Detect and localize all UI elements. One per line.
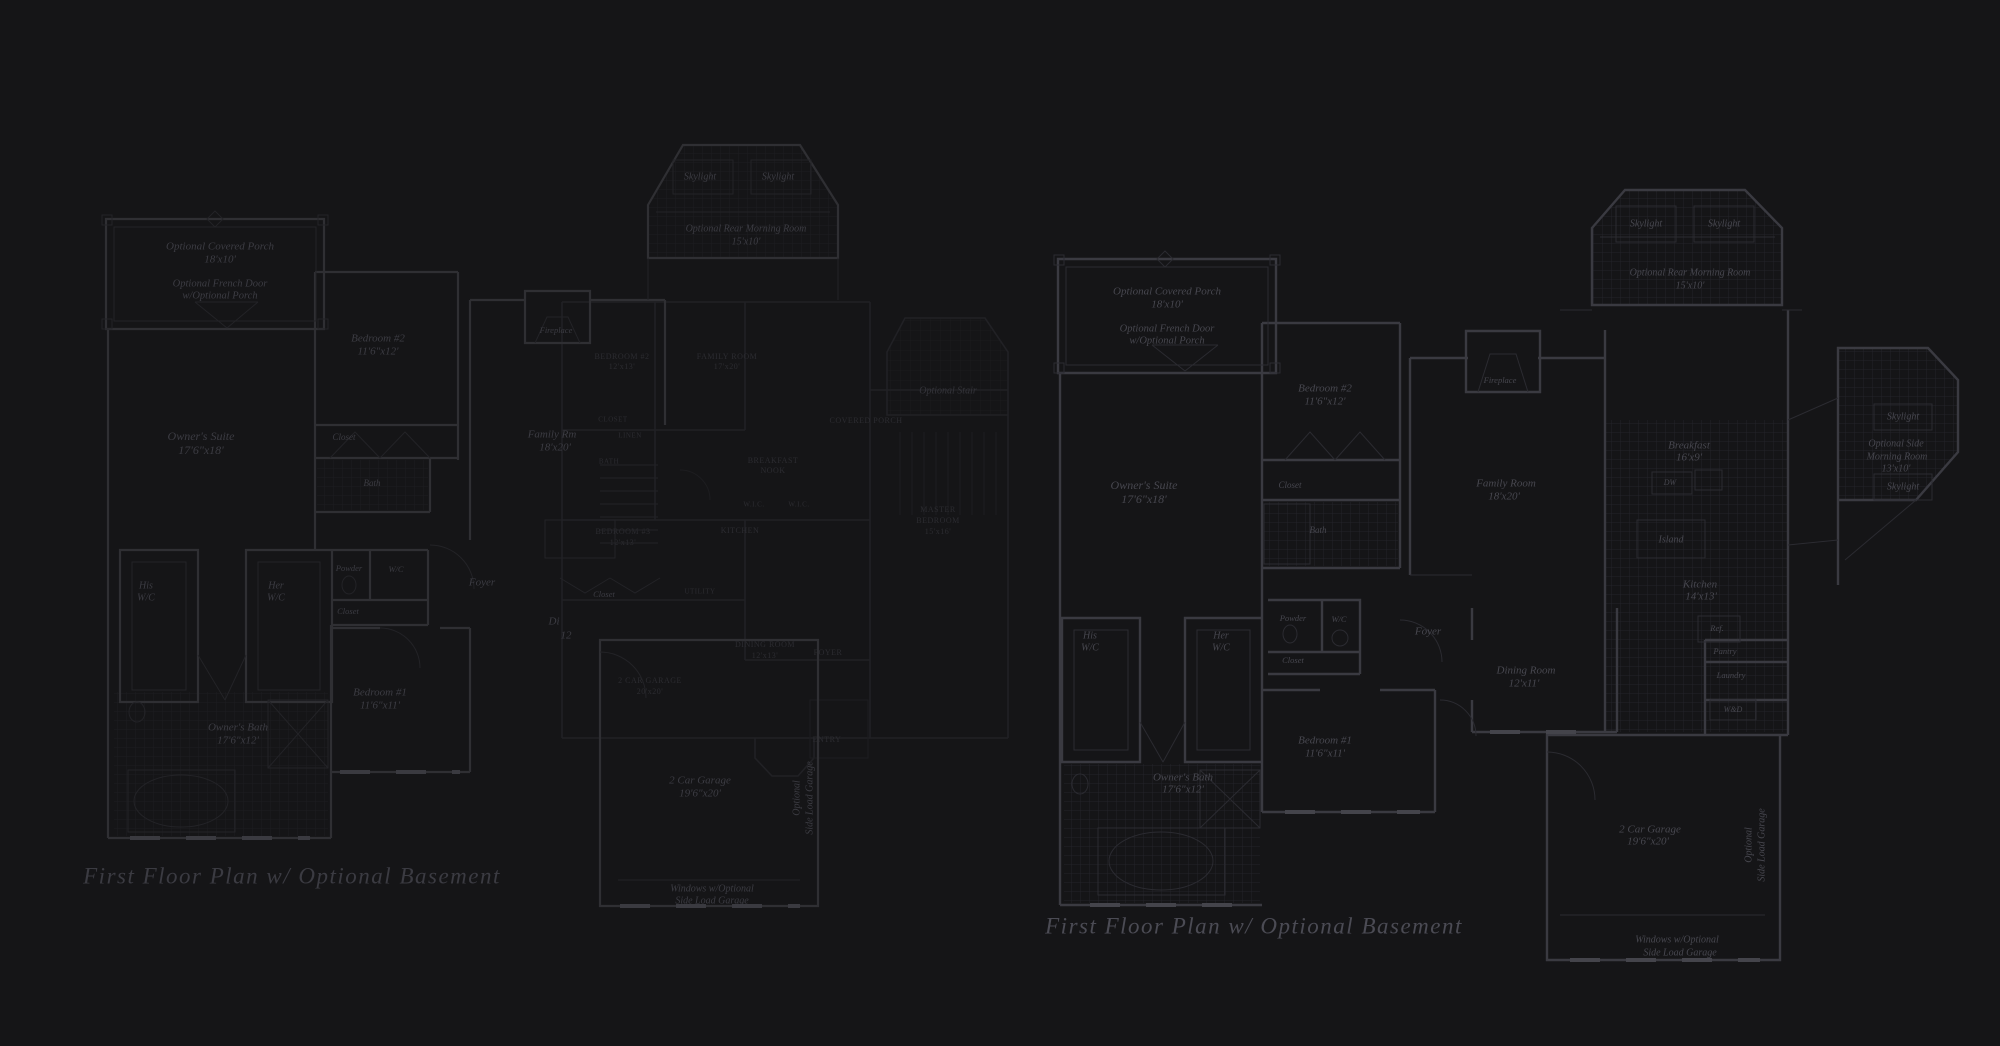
label-bedroom-2: Bedroom #2 [351,333,405,345]
label-morning-room-dims: 15'x10' [732,236,762,247]
label-foyer: Foyer [468,577,496,589]
label-bedroom-2: BEDROOM #2 [594,352,649,361]
label-pantry: Pantry [1712,646,1736,656]
label-dining-room-dims: 12'x13' [752,651,778,660]
label-covered-porch: Optional Covered Porch [166,241,274,253]
label-covered-porch: COVERED PORCH [830,416,903,425]
label-wic: W.I.C. [743,501,764,509]
label-her-wic: W/C [1212,642,1230,653]
label-closet: Closet [1282,655,1304,665]
label-skylight: Skylight [1708,218,1740,229]
label-garage-windows: Windows w/Optional [1635,934,1719,945]
label-linen: LINEN [618,432,642,440]
label-owners-bath-dims: 17'6"x12' [217,735,259,747]
label-master-bedroom: MASTER [920,505,956,514]
label-morning-room: Optional Rear Morning Room [686,223,807,234]
right-floor-plan: SkylightSkylightOptional Rear Morning Ro… [1044,190,1958,960]
label-side-morning-room-dims: 13'x10' [1882,463,1912,474]
label-garage: 2 Car Garage [669,775,731,787]
label-closet: Closet [337,606,359,616]
label-bedroom-1: Bedroom #1 [353,687,407,699]
label-bedroom-1: Bedroom #1 [1298,735,1352,747]
label-garage-windows: Windows w/Optional [670,883,754,894]
label-master-bedroom-dims: 15'x16' [925,527,951,536]
label-morning-room: Optional Rear Morning Room [1630,267,1751,278]
label-bedroom-1-dims: 11'6"x11' [1305,748,1346,760]
label-closet: Closet [1278,480,1302,490]
label-skylight: Skylight [762,171,794,182]
label-garage-dims: 19'6"x20' [1627,836,1669,848]
label-owners-bath: Owner's Bath [208,722,269,734]
label-side-load-garage-vertical: Side Load Garage [1756,808,1767,882]
label-owners-suite: Owner's Suite [1111,478,1179,492]
label-garage: 2 CAR GARAGE [618,676,682,685]
middle-plan-details [680,432,996,758]
label-garage-windows: Side Load Garage [675,895,749,906]
label-family-room: Family Rm [527,429,577,441]
middle-floor-plan: BEDROOM #212'x13'FAMILY ROOM17'x20'CLOSE… [562,302,1008,776]
label-breakfast-dims: 16'x9' [1676,452,1703,464]
label-closet: Closet [332,432,356,442]
label-side-load-garage-vertical: Optional [791,780,802,816]
label-garage: 2 Car Garage [1619,824,1681,836]
label-skylight: Skylight [684,171,716,182]
label-dining-room-dims: 12'x11' [1509,678,1540,690]
label-washer-dryer: W&D [1724,705,1743,714]
blueprint-canvas: BEDROOM #212'x13'FAMILY ROOM17'x20'CLOSE… [0,0,2000,1046]
label-covered-porch-dims: 18'x10' [1151,299,1183,311]
label-powder: Powder [1279,613,1307,623]
label-bedroom-3: BEDROOM #3 [595,527,650,536]
label-bedroom-2-dims: 12'x13' [609,362,635,371]
label-optional-stair: Optional Stair [919,385,977,396]
label-master-bedroom: BEDROOM [916,516,960,525]
floor-plans-drawing: BEDROOM #212'x13'FAMILY ROOM17'x20'CLOSE… [0,0,2000,1046]
right-powder-toilet [1283,625,1297,643]
label-her-wic: W/C [267,592,285,603]
label-morning-room-dims: 15'x10' [1676,280,1706,291]
right-powder-sink [1332,630,1348,646]
label-refrigerator: Ref. [1709,623,1723,633]
label-family-room-dims: 17'x20' [714,362,740,371]
label-skylight: Skylight [1630,218,1662,229]
label-skylight: Skylight [1887,411,1919,422]
label-french-door: Optional French Door [1120,323,1216,334]
label-bath: Bath [1310,525,1327,535]
label-his-wic: His [138,580,153,591]
label-bedroom-2-dims: 11'6"x12' [358,346,400,358]
label-his-wic: His [1082,630,1097,641]
label-skylight: Skylight [1887,481,1919,492]
label-french-door: Optional French Door [173,278,269,289]
label-bedroom-3-dims: 12'x13' [610,538,636,547]
label-closet: Closet [593,589,615,599]
label-wc: W/C [1331,614,1346,624]
label-covered-porch-dims: 18'x10' [204,254,236,266]
label-french-door: w/Optional Porch [182,290,257,301]
label-breakfast-nook: BREAKFAST [748,456,799,465]
label-foyer: Foyer [1414,626,1442,638]
label-bath: Bath [364,478,381,488]
label-side-morning-room: Morning Room [1866,451,1928,462]
label-island: Island [1658,534,1685,545]
label-breakfast: Breakfast [1668,440,1711,452]
label-wc: W/C [388,564,403,574]
left-powder-toilet [342,576,356,594]
right-bath-tile [1264,502,1398,566]
plan-title-right: First Floor Plan w/ Optional Basement [1044,913,1463,938]
label-dining-partial: Di [548,616,560,628]
label-dishwasher: DW [1663,478,1678,487]
label-bedroom-2: Bedroom #2 [1298,383,1352,395]
label-breakfast-nook: NOOK [760,466,785,475]
label-family-room-dims: 18'x20' [539,442,571,454]
label-owners-bath: Owner's Bath [1153,772,1214,784]
label-fireplace: Fireplace [539,325,573,335]
label-kitchen: KITCHEN [721,526,760,535]
label-kitchen: Kitchen [1682,579,1718,591]
label-bath: BATH [599,458,619,466]
label-owners-suite-dims: 17'6"x18' [178,443,224,457]
right-kitchen-tile [1605,420,1788,732]
label-bedroom-1-dims: 11'6"x11' [360,700,401,712]
label-wic: W.I.C. [788,501,809,509]
label-fireplace: Fireplace [1483,375,1517,385]
label-her-wic: Her [267,580,284,591]
label-family-room: Family Room [1475,478,1536,490]
label-covered-porch: Optional Covered Porch [1113,286,1221,298]
label-owners-suite-dims: 17'6"x18' [1121,492,1167,506]
label-laundry: Laundry [1716,670,1746,680]
right-side-morning-room-tile [1838,348,1958,500]
label-his-wic: W/C [137,592,155,603]
label-side-morning-room: Optional Side [1868,438,1924,449]
plan-title-left: First Floor Plan w/ Optional Basement [82,863,501,888]
label-powder: Powder [335,563,363,573]
label-utility: UTILITY [684,588,715,596]
label-side-load-garage-vertical: Side Load Garage [804,761,815,835]
label-french-door: w/Optional Porch [1129,335,1204,346]
label-garage-windows: Side Load Garage [1643,947,1717,958]
label-closet: CLOSET [598,416,628,424]
label-owners-bath-dims: 17'6"x12' [1162,784,1204,796]
label-family-room-dims: 18'x20' [1488,491,1520,503]
label-her-wic: Her [1212,630,1229,641]
label-his-wic: W/C [1081,642,1099,653]
label-side-load-garage-vertical: Optional [1743,827,1754,863]
label-garage-dims: 20'x20' [637,687,663,696]
label-bedroom-2-dims: 11'6"x12' [1305,396,1347,408]
label-family-room: FAMILY ROOM [697,352,757,361]
label-owners-suite: Owner's Suite [168,429,236,443]
label-dining-dims-partial: 12 [561,630,573,642]
label-dining-room: DINING ROOM [735,640,795,649]
label-dining-room: Dining Room [1496,665,1556,677]
label-kitchen-dims: 14'x13' [1685,591,1717,603]
middle-breakfast-bay-tile [887,318,1008,415]
label-garage-dims: 19'6"x20' [679,788,721,800]
